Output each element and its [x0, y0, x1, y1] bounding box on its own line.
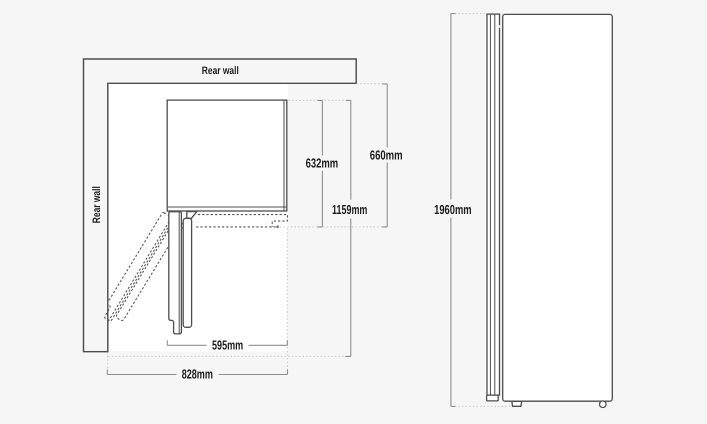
svg-text:828mm: 828mm — [182, 367, 213, 382]
svg-text:1159mm: 1159mm — [332, 202, 367, 217]
svg-text:1960mm: 1960mm — [434, 202, 472, 217]
svg-text:Rear wall: Rear wall — [202, 65, 239, 77]
svg-text:660mm: 660mm — [370, 147, 403, 162]
svg-text:Rear wall: Rear wall — [91, 186, 103, 223]
svg-text:632mm: 632mm — [306, 155, 339, 170]
svg-text:595mm: 595mm — [212, 338, 243, 353]
